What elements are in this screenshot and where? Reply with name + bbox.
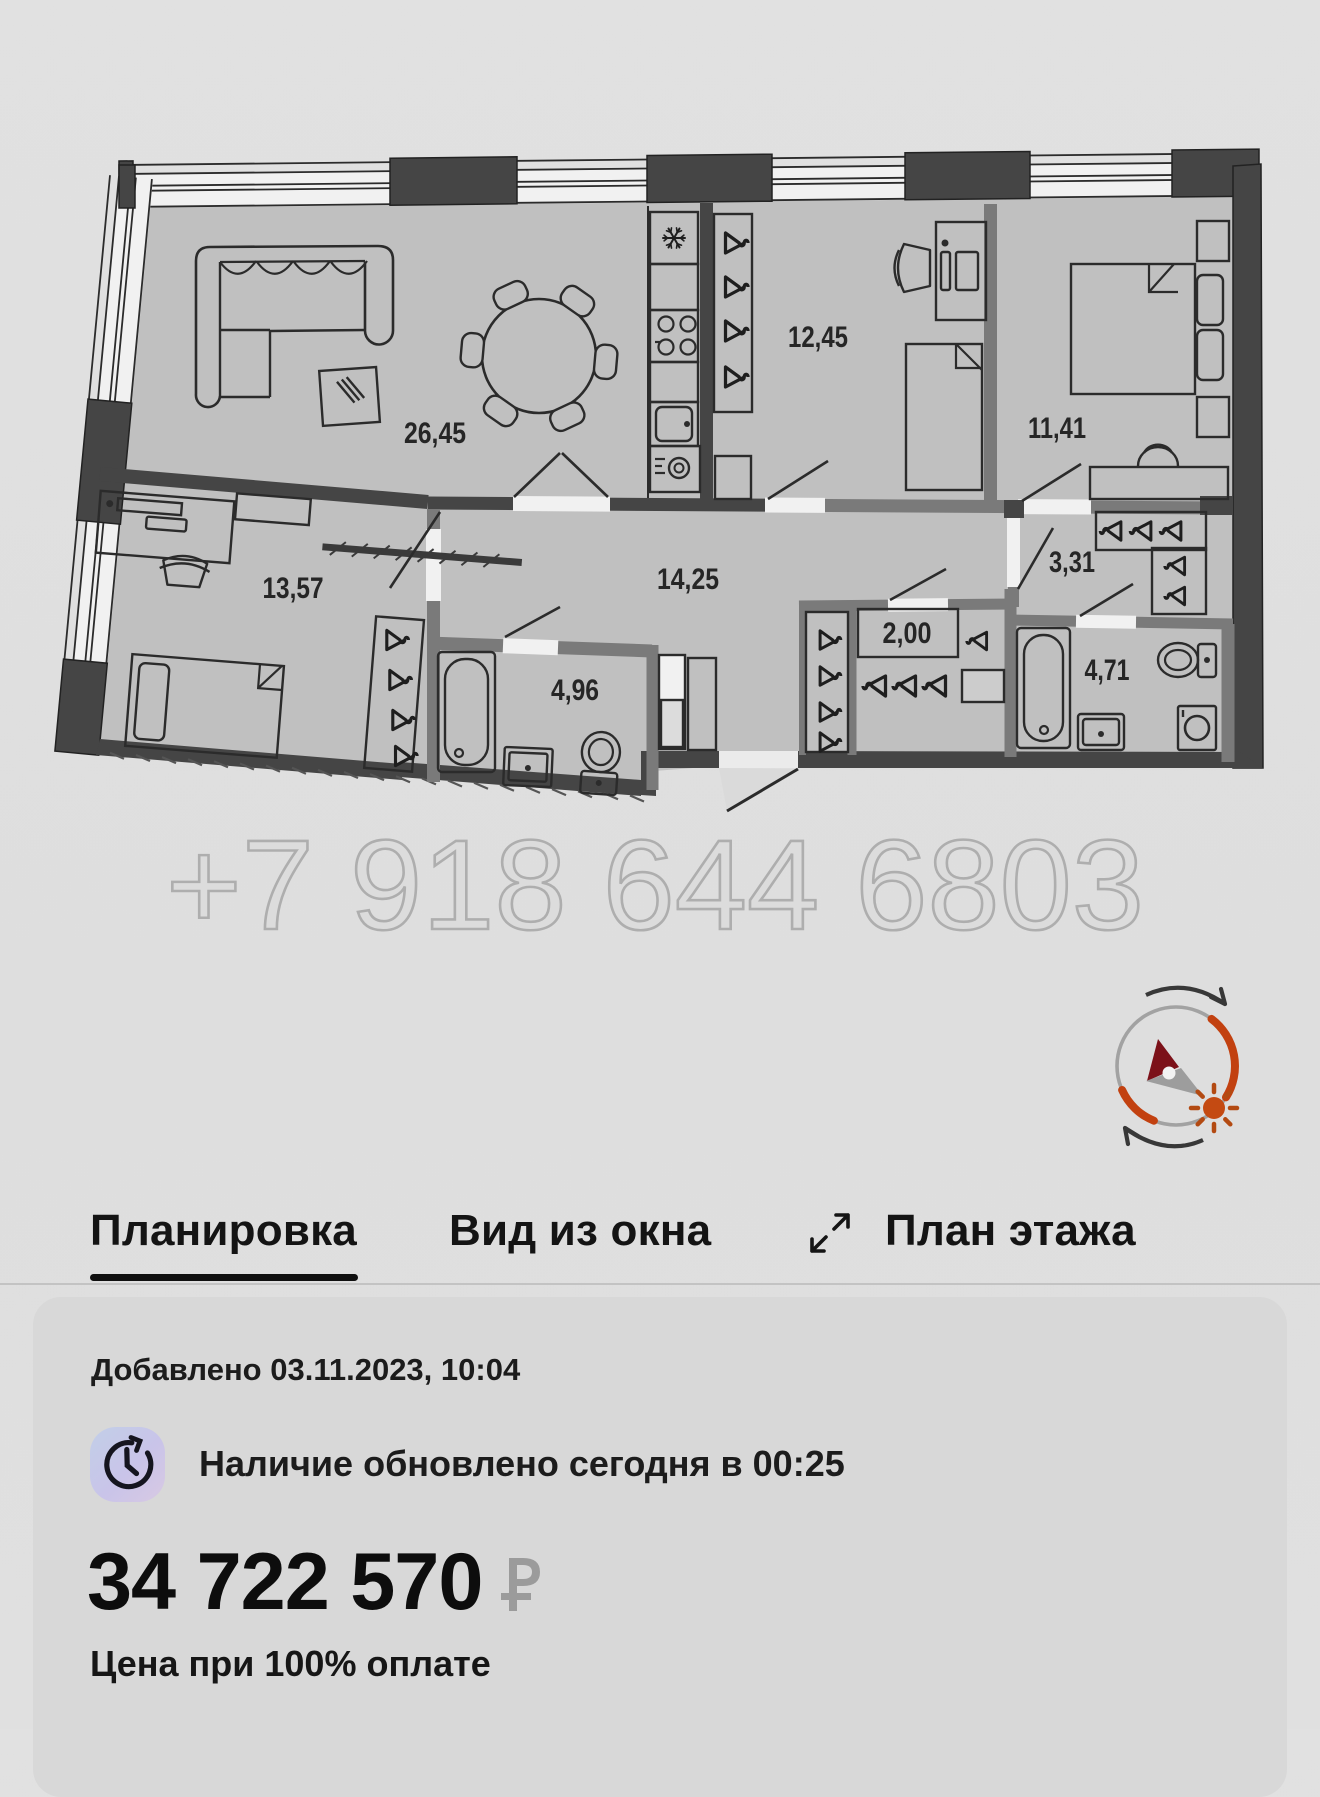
svg-text:14,25: 14,25 [657,563,719,596]
svg-text:+7 918 644 6803: +7 918 644 6803 [166,814,1144,957]
svg-text:4,96: 4,96 [551,674,599,707]
svg-text:26,45: 26,45 [404,417,466,450]
svg-text:12,45: 12,45 [788,321,848,354]
svg-text:11,41: 11,41 [1028,412,1086,445]
svg-text:13,57: 13,57 [263,572,324,605]
svg-text:3,31: 3,31 [1049,546,1095,579]
svg-text:2,00: 2,00 [883,617,932,650]
svg-text:4,71: 4,71 [1085,654,1130,687]
